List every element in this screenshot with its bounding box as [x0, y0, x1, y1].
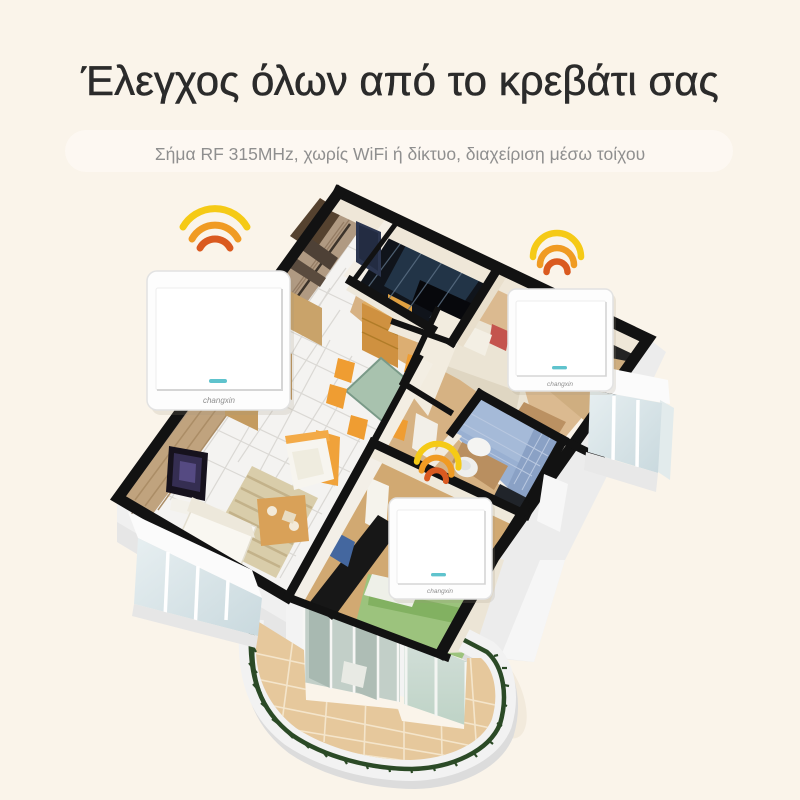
svg-text:changxin: changxin	[203, 396, 236, 405]
svg-text:changxin: changxin	[547, 381, 573, 388]
svg-text:changxin: changxin	[427, 588, 453, 595]
